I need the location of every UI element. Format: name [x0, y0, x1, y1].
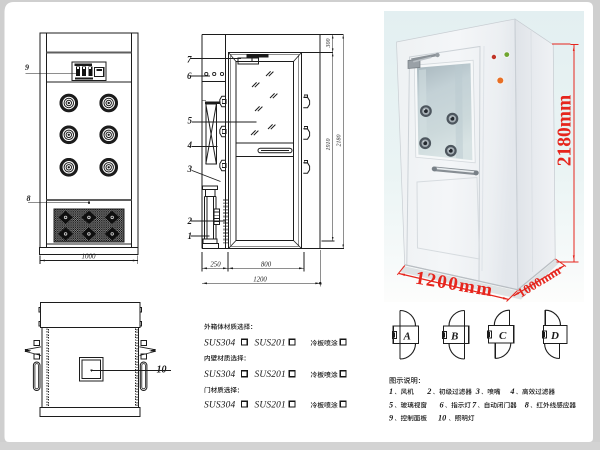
svg-text:8: 8: [27, 194, 31, 203]
svg-text:10: 10: [438, 414, 446, 423]
svg-text:4: 4: [187, 140, 193, 150]
svg-text:SUS201: SUS201: [255, 370, 286, 380]
svg-text::: :: [244, 356, 246, 363]
svg-text:3: 3: [475, 387, 480, 396]
svg-text:1200: 1200: [253, 277, 267, 284]
svg-text:10: 10: [157, 364, 167, 375]
svg-text:300: 300: [326, 39, 332, 49]
svg-text:SUS304: SUS304: [204, 370, 236, 380]
svg-text:5: 5: [188, 116, 193, 126]
svg-text:D: D: [550, 330, 559, 342]
svg-text:A: A: [403, 330, 411, 342]
svg-text:SUS201: SUS201: [255, 339, 286, 349]
svg-text:1: 1: [389, 387, 393, 396]
svg-text:B: B: [450, 330, 458, 342]
svg-text:1000: 1000: [82, 253, 97, 261]
svg-text:9: 9: [25, 63, 29, 72]
svg-text:250: 250: [210, 262, 221, 269]
svg-text:5: 5: [389, 401, 393, 410]
svg-text:SUS304: SUS304: [204, 401, 236, 411]
svg-text:4: 4: [509, 387, 514, 396]
svg-text:2180mm: 2180mm: [554, 95, 575, 167]
svg-text:C: C: [499, 330, 507, 342]
svg-text:8: 8: [525, 401, 529, 410]
svg-text:SUS201: SUS201: [255, 401, 286, 411]
svg-text:3: 3: [187, 164, 193, 174]
svg-text::: :: [237, 387, 239, 394]
svg-text:800: 800: [261, 262, 272, 269]
svg-text:2180: 2180: [336, 135, 342, 147]
svg-text::: :: [418, 378, 420, 385]
svg-text::: :: [251, 324, 253, 331]
svg-text:1910: 1910: [326, 139, 332, 151]
svg-text:2: 2: [426, 387, 431, 396]
svg-text:SUS304: SUS304: [204, 339, 236, 349]
svg-text:9: 9: [389, 414, 393, 423]
svg-text:7: 7: [187, 55, 192, 65]
